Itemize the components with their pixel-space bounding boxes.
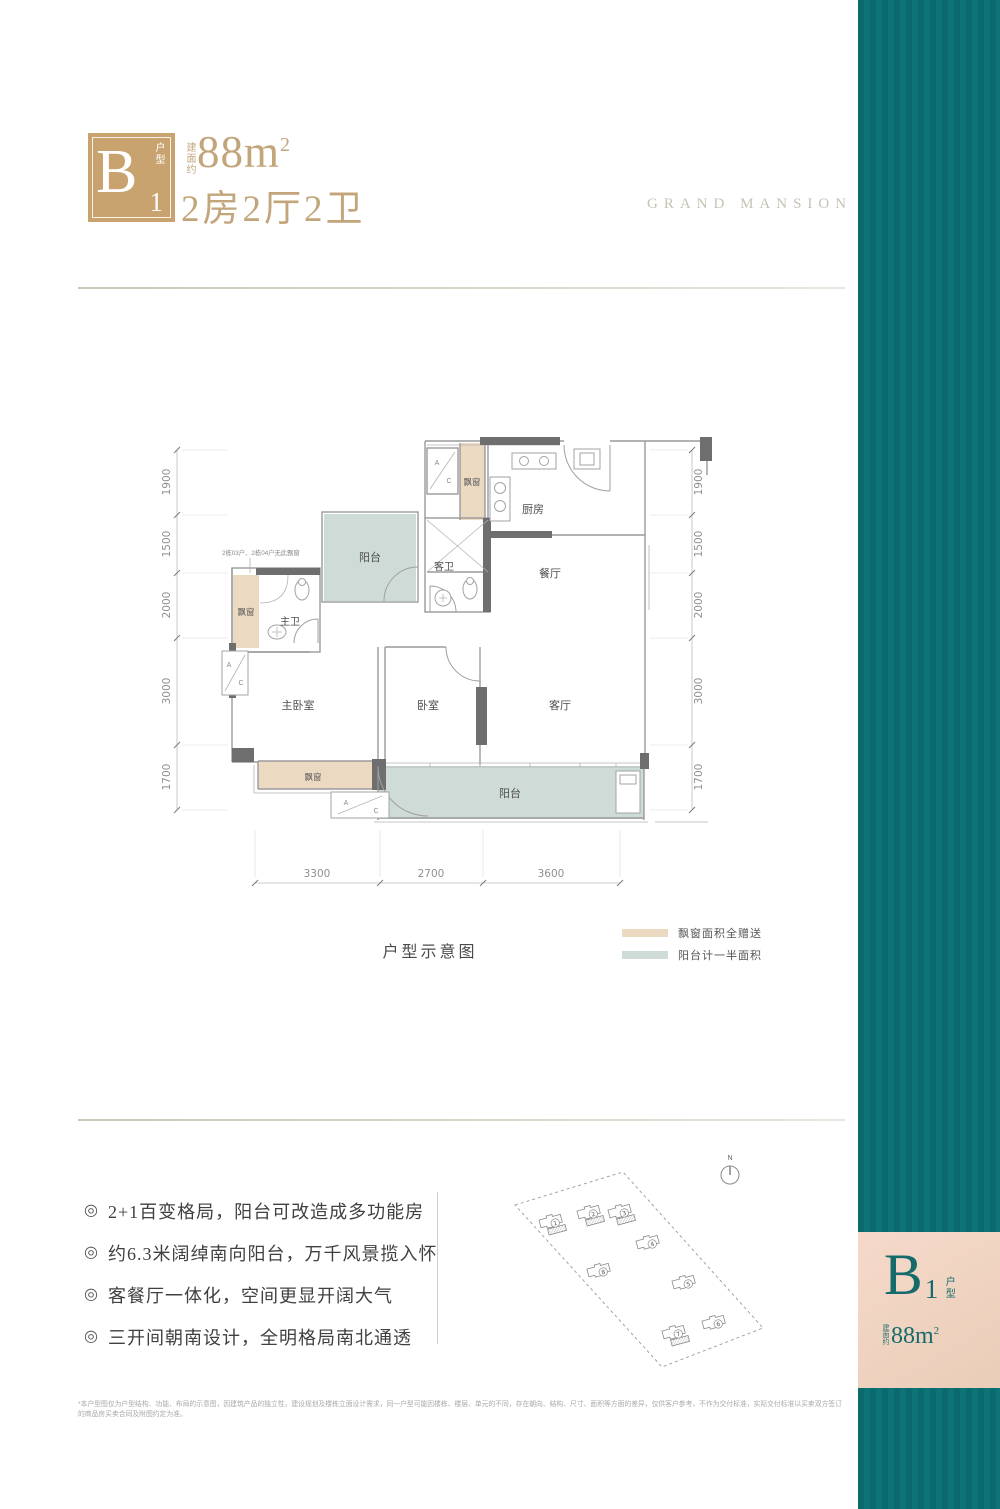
- sidebar-area-number: 88m: [891, 1323, 934, 1349]
- siteplan-building-7: 7: [661, 1323, 689, 1348]
- dim-left-5: 1700: [161, 764, 173, 791]
- guest-toilet-icon: [463, 578, 477, 600]
- room-label-dining: 餐厅: [539, 566, 561, 580]
- sidebar-badge-letter: B: [884, 1246, 923, 1304]
- feature-text-1: 2+1百变格局，阳台可改造成多功能房: [108, 1198, 424, 1224]
- site-boundary: [515, 1172, 763, 1367]
- brand-logotype: GRAND MANSION: [647, 196, 852, 213]
- sidebar-area-prefix: 建面约: [882, 1324, 889, 1345]
- siteplan-building-5: 5: [671, 1273, 696, 1291]
- dim-right-4: 3000: [693, 678, 705, 705]
- legend-label-bay: 飘窗面积全赠送: [678, 925, 762, 941]
- sidebar-badge-number: 1: [925, 1276, 939, 1303]
- sidebar-badge-unit: 户型: [941, 1276, 956, 1300]
- dim-bottom-3: 3600: [538, 868, 565, 880]
- feature-item: ◎ 客餐厅一体化，空间更显开阔大气: [84, 1274, 437, 1316]
- unit-badge-letter: B: [96, 129, 137, 216]
- ac-box-top-icon: A C: [430, 452, 455, 489]
- teal-sidebar: B 1 户型 建面约 88m2: [858, 0, 1000, 1509]
- kitchen-appliance-icon: [574, 449, 600, 469]
- dim-bottom-2: 2700: [418, 868, 445, 880]
- feature-item: ◎ 2+1百变格局，阳台可改造成多功能房: [84, 1190, 437, 1232]
- ac-a-label: A: [344, 800, 349, 807]
- site-plan: N 1 2 3 4 8: [480, 1140, 820, 1380]
- balcony-swatch: [622, 951, 668, 959]
- floorplan-page: { "header": { "badge_letter": "B", "badg…: [0, 0, 1000, 1509]
- dim-right-5: 1700: [693, 764, 705, 791]
- siteplan-building-2: 2: [576, 1203, 604, 1228]
- room-label-kitchen: 厨房: [522, 503, 544, 516]
- bullet-icon: ◎: [84, 1245, 98, 1261]
- bay-window-note: 2栋03户、2栋04户无此飘窗: [222, 548, 300, 557]
- room-label-master-bath: 主卫: [280, 616, 300, 628]
- floor-plan: A C A C A C 厨房 餐厅 客卫 阳台 主卫 飘窗 飘窗 飘窗 主卧室 …: [150, 425, 720, 900]
- dim-left-3: 2000: [161, 592, 173, 619]
- unit-badge-number: 1: [150, 187, 164, 218]
- ac-c-label: C: [238, 680, 243, 687]
- dim-right-2: 1500: [693, 531, 705, 558]
- plan-caption: 户型示意图: [340, 938, 520, 962]
- room-label-bay-bottom: 飘窗: [304, 772, 321, 782]
- feature-text-3: 客餐厅一体化，空间更显开阔大气: [108, 1282, 393, 1308]
- legend-item-bay: 飘窗面积全赠送: [622, 922, 762, 944]
- top-divider: [78, 287, 845, 289]
- stove-icon: [512, 453, 556, 469]
- area-number: 88m: [197, 127, 280, 177]
- room-label-guest-bath: 客卫: [434, 560, 454, 573]
- ac-box-bottom-icon: A C: [331, 792, 389, 818]
- ac-box-left-icon: A C: [222, 651, 248, 695]
- disclaimer-text: *本户型图仅为户型结构、功能、布局的示意图，因建筑产品的独立性，建设规划及楼栋立…: [78, 1398, 848, 1418]
- feature-text-4: 三开间朝南设计，全明格局南北通透: [108, 1324, 412, 1350]
- room-label-master-bedroom: 主卧室: [282, 698, 315, 712]
- legend: 飘窗面积全赠送 阳台计一半面积: [622, 922, 762, 966]
- dim-left-2: 1500: [161, 531, 173, 558]
- balcony-appliance-icon: [616, 771, 640, 813]
- ac-c-label: C: [446, 478, 451, 485]
- dim-right-1: 1900: [693, 469, 705, 496]
- north-label: N: [727, 1155, 732, 1162]
- bottom-divider: [78, 1119, 845, 1121]
- room-label-balcony-south: 阳台: [499, 786, 521, 800]
- dim-right-3: 2000: [693, 592, 705, 619]
- unit-badge-label: 户型: [151, 142, 166, 166]
- sidebar-area-value: 88m2: [891, 1324, 939, 1348]
- siteplan-building-1: 1: [538, 1212, 566, 1237]
- dim-bottom-1: 3300: [304, 868, 331, 880]
- room-label-balcony-north: 阳台: [359, 550, 381, 564]
- feature-item: ◎ 约6.3米阔绰南向阳台，万千风景揽入怀: [84, 1232, 437, 1274]
- ac-a-label: A: [227, 662, 232, 669]
- siteplan-building-8: 8: [586, 1261, 611, 1279]
- layout-text: 2房2厅2卫: [181, 178, 366, 232]
- room-label-bay-top: 飘窗: [463, 477, 480, 487]
- colored-areas: [233, 443, 644, 819]
- siteplan-building-4: 4: [635, 1233, 660, 1251]
- siteplan-building-3: 3: [607, 1202, 635, 1227]
- unit-badge: B 户型 1: [88, 133, 175, 222]
- north-compass-icon: N: [721, 1155, 739, 1184]
- ac-c-label: C: [373, 808, 378, 815]
- legend-item-balcony: 阳台计一半面积: [622, 944, 762, 966]
- bullet-icon: ◎: [84, 1287, 98, 1303]
- area-prefix: 建面约: [182, 142, 197, 175]
- feature-list: ◎ 2+1百变格局，阳台可改造成多功能房 ◎ 约6.3米阔绰南向阳台，万千风景揽…: [84, 1190, 437, 1358]
- feature-item: ◎ 三开间朝南设计，全明格局南北通透: [84, 1316, 437, 1358]
- bay-window-swatch: [622, 929, 668, 937]
- area-superscript: 2: [280, 134, 291, 156]
- guest-sink-icon: [435, 590, 451, 606]
- dim-left-4: 3000: [161, 678, 173, 705]
- feature-siteplan-divider: [437, 1192, 438, 1344]
- dim-left-1: 1900: [161, 469, 173, 496]
- siteplan-building-6: 6: [701, 1313, 726, 1331]
- room-label-bedroom: 卧室: [417, 698, 439, 712]
- sidebar-unit-badge: B 1 户型 建面约 88m2: [858, 1232, 1000, 1388]
- area-value: 88m2: [197, 126, 291, 178]
- kitchen-sink-icon: [490, 477, 510, 521]
- legend-label-balcony: 阳台计一半面积: [678, 947, 762, 963]
- room-label-bay-left: 飘窗: [237, 607, 254, 617]
- feature-text-2: 约6.3米阔绰南向阳台，万千风景揽入怀: [108, 1240, 438, 1266]
- sidebar-area-superscript: 2: [934, 1325, 940, 1337]
- room-label-living: 客厅: [549, 698, 571, 712]
- bullet-icon: ◎: [84, 1203, 98, 1219]
- bullet-icon: ◎: [84, 1329, 98, 1345]
- master-shower-corner: [260, 575, 288, 603]
- ac-a-label: A: [435, 460, 440, 467]
- master-toilet-icon: [295, 579, 309, 601]
